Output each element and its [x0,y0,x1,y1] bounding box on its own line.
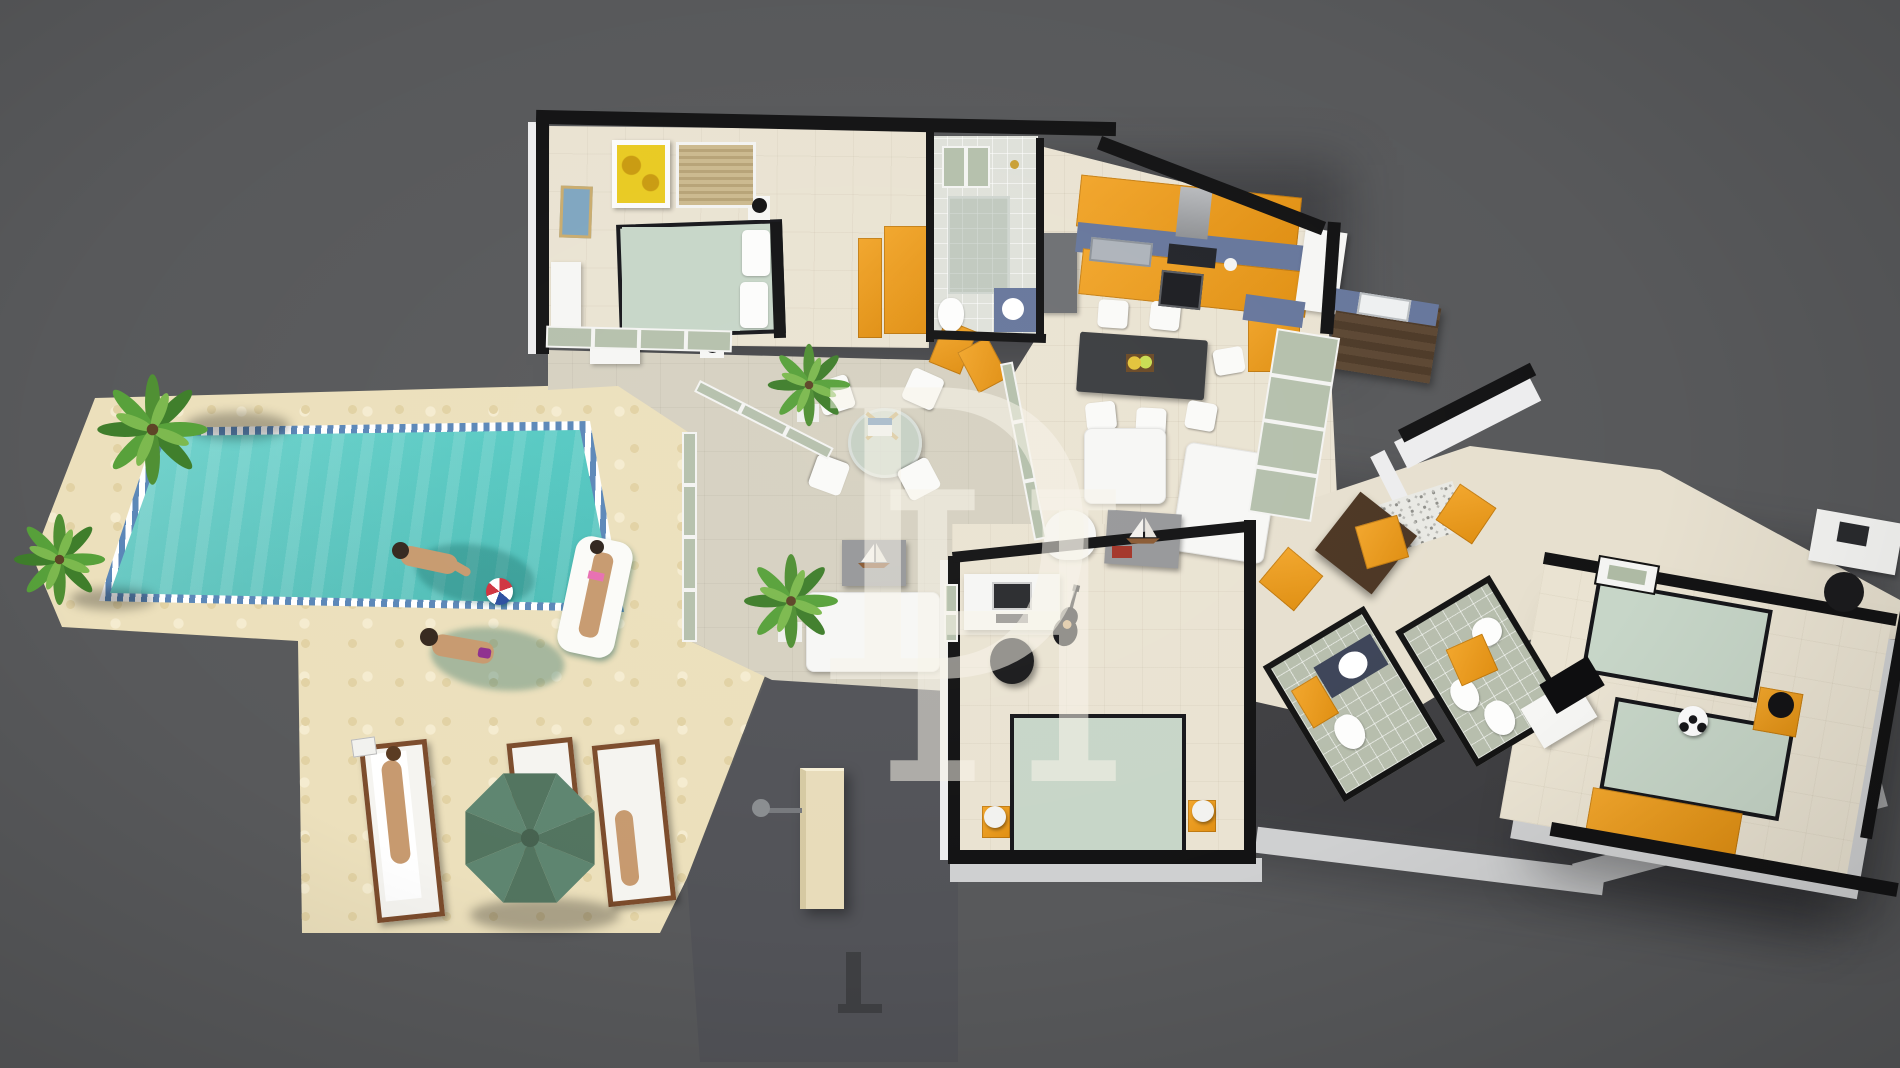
sink-1 [1002,298,1024,320]
ball-lamp-1 [984,806,1006,828]
sunbather-1-book [351,736,377,757]
kettle [1224,258,1237,271]
wardrobe-orange [884,226,930,334]
dining-chair-3 [1085,401,1118,432]
fridge [1041,233,1077,313]
ball-lamp-2 [1192,800,1214,822]
dining-chair-5 [1184,400,1218,433]
office-south-wall [948,850,1256,864]
outdoor-shower-wall [800,768,844,909]
veranda-sailboat [854,540,894,572]
dining-chair-1 [1097,299,1129,329]
office-bed-duvet [1015,718,1181,810]
desk-monitor [992,582,1032,610]
west-wall [536,118,549,354]
office-chair [990,638,1034,684]
float-woman-head [590,540,604,554]
wall-art-blue [559,185,593,238]
umbrella [454,762,606,914]
kids-lamp [1768,692,1794,718]
veranda-west-glazing [682,432,697,642]
master-bed-pillow-2 [740,282,768,328]
master-bed-duvet [622,227,740,331]
sunbather-1-head [386,746,401,761]
fruit-tray [1126,354,1154,372]
soccer-ball [1678,706,1708,736]
floorplan-scene: D H [0,0,1900,1068]
wall-art-yellow [612,140,670,208]
office-west-window [944,584,958,642]
bedroom-bath-wall [926,132,934,342]
master-bed-pillow-1 [742,230,770,276]
bedroom-south-windows [546,326,733,353]
swimmer2-bikini [477,647,492,659]
cooker-hood [1175,186,1212,239]
window-blinds [676,142,756,208]
sofa-1 [1084,428,1166,504]
wall-lamp-gold [1010,160,1019,169]
table-lamp-n [752,198,767,213]
beach-ball [486,578,513,605]
palm-tree-3 [766,342,852,428]
palm-tree-1 [95,372,210,487]
shower-pipe [768,808,802,813]
oven [1158,270,1204,310]
toilet-1 [938,298,964,332]
desk-keyboard [996,614,1028,623]
gate-post [846,952,861,1010]
bath-window [942,146,990,188]
sailboat-model [1122,514,1164,548]
bath-kitchen-wall [1036,138,1044,336]
books-on-table [1112,546,1132,558]
office-east-wall [1244,520,1256,862]
shower-head [752,799,770,817]
tray-blue [868,418,892,436]
palm-tree-2 [12,512,107,607]
gate-bar [838,1004,882,1013]
kids-desk-chair [1824,572,1864,612]
shower-enclosure [948,196,1010,294]
swimmer1-head [392,542,409,559]
palm-tree-4 [742,552,840,650]
swimmer2-head [420,628,438,646]
dining-chair-6 [1212,346,1246,377]
corridor-cabinet [858,238,882,338]
